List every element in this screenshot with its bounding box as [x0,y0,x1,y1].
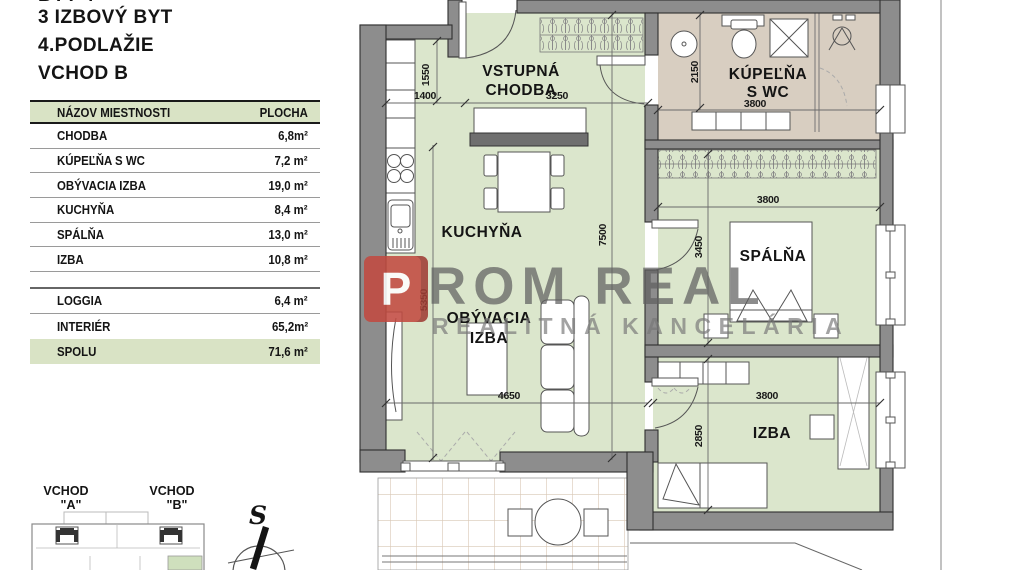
bathroom-sink [671,31,697,57]
dim-bedroom-w: 3800 [757,194,780,206]
col-area: PLOCHA [260,105,308,120]
kitchen-bar-top [474,108,586,133]
loggia-french-window [401,461,505,471]
logo-tagline: REALITNÁ KANCELÁRIA [432,313,849,340]
dim-hall-h: 1550 [420,63,432,86]
dim-room-h: 2850 [693,424,705,447]
rooms-table: NÁZOV MIESTNOSTI PLOCHA CHODBA 6,8m² KÚP… [30,100,320,364]
hall-wardrobe [540,18,643,52]
table-header: NÁZOV MIESTNOSTI PLOCHA [30,100,320,124]
dim-bath-h: 2150 [689,60,701,83]
dim-plan-h: 7500 [597,223,609,246]
loggia-chair [508,509,532,536]
toilet [731,20,757,58]
hall-label: VSTUPNÁ [482,63,560,80]
apartment-type-title: 3 IZBOVÝ BYT [38,7,173,29]
floor-title: 4.PODLAŽIE [38,35,154,57]
clipped-title-line: BYT 4 [38,0,94,7]
dim-room-w: 3800 [756,390,779,402]
room-label: IZBA [753,425,791,442]
bathroom-label: KÚPEĽŇA [729,65,807,83]
kitchen-sink [388,200,413,250]
table-gap [30,272,320,289]
building-edge-line [630,543,862,570]
loggia-table [535,499,581,545]
promreal-logo: P ROM REAL REALITNÁ KANCELÁRIA [364,254,864,349]
logo-name: ROM REAL [428,260,767,314]
col-room-name: NÁZOV MIESTNOSTI [57,105,170,120]
kitchen-label: KUCHYŇA [442,223,523,241]
floorplan-page: 1400 3250 1550 3800 2150 7500 5350 3450 … [0,0,1011,570]
hall-label2: CHODBA [485,82,556,99]
table-row: SPÁLŇA 13,0 m² [30,223,320,248]
table-row-loggia: LOGGIA 6,4 m² [30,289,320,314]
table-row-total: SPOLU 71,6 m² [30,339,320,364]
bedroom-window [876,225,905,325]
table-row-interier: INTERIÉR 65,2m² [30,314,320,339]
room-window [876,372,905,468]
bathroom-label2: S WC [747,84,789,101]
table-row: IZBA 10,8 m² [30,247,320,272]
table-row: KÚPEĽŇA S WC 7,2 m² [30,149,320,174]
room-side-table [810,415,834,439]
kitchen-bar [470,133,588,146]
dim-living-w: 4650 [498,390,521,402]
loggia-chair [584,509,608,536]
shower [770,19,808,57]
dim-hall-w1: 1400 [414,90,437,102]
logo-mark-icon: P [364,256,428,322]
table-row: KUCHYŇA 8,4 m² [30,198,320,223]
entrance-title: VCHOD B [38,63,128,85]
info-panel: BYT 4 3 IZBOVÝ BYT 4.PODLAŽIE VCHOD B NÁ… [0,0,340,570]
table-row: CHODBA 6,8m² [30,124,320,149]
table-row: OBÝVACIA IZBA 19,0 m² [30,173,320,198]
